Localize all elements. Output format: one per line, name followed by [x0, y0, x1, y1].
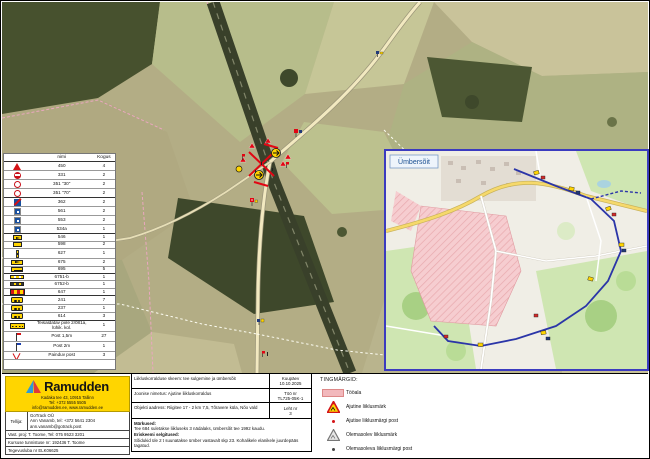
sign-qty: 4 — [93, 162, 115, 171]
sign-name: 362 — [31, 198, 93, 207]
legend-row: 351 "30"2 — [4, 180, 115, 189]
legend-row: 4504 — [4, 162, 115, 171]
plan-notes: Märkused: Tee 684 suletakse liikluseks 3… — [132, 419, 311, 451]
company-name: Ramudden — [44, 379, 109, 394]
sign-name: 6751-b — [31, 274, 93, 281]
company-block: Ramudden Kadaka tee 43, 10915 Tallinn Te… — [5, 376, 130, 455]
credits-table: Tellija: GoTrack OÜ Ann Vanamb, tel: +37… — [5, 412, 130, 454]
ta-plan-sheet: nimi Kogus 4504 3312 351 "30"2 351 "70"2… — [0, 0, 650, 459]
sign-qty: 1 — [93, 281, 115, 288]
plate-icon — [13, 242, 22, 247]
inset-label: Ümbersõit — [398, 158, 430, 166]
object-address: Objekti aadress: Riigitee 17 - 2 km 7,5,… — [132, 403, 269, 418]
flex-post-icon — [13, 353, 21, 359]
barrier-plank-icon — [10, 282, 24, 287]
info-sign-icon — [14, 226, 21, 233]
legend-row: 3622 — [4, 198, 115, 207]
sign-qty: 2 — [93, 207, 115, 216]
legend-row: 5982 — [4, 241, 115, 249]
sign-name: 546 — [31, 234, 93, 242]
striped-barrier-icon — [10, 289, 25, 295]
sign-qty: 2 — [93, 198, 115, 207]
barrier-plank-icon — [10, 275, 24, 280]
sign-name: Post 2m — [31, 342, 93, 352]
detour-inset-map: Ümbersõit — [384, 149, 649, 371]
legend-header-row: nimi Kogus — [4, 154, 115, 162]
sign-name: 675 — [31, 259, 93, 267]
notes-title: Märkused: — [134, 421, 156, 426]
symbol-label: Ajutise liiklusmärgi post — [346, 418, 398, 424]
sign-name: 695 — [31, 266, 93, 274]
sign-qty: 1 — [93, 234, 115, 242]
sign-qty: 2 — [93, 241, 115, 249]
sign-qty: 1 — [93, 342, 115, 352]
note-line2: Sõidukid üle 2 t suunatakse ümber vastav… — [134, 438, 309, 449]
sign-name: 331 — [31, 171, 93, 180]
portable-fence-icon — [10, 323, 25, 329]
sign-qty: 1 — [93, 249, 115, 259]
symbol-label: Olemasoleva liiklusmärgi post — [346, 446, 412, 452]
sign-qty: 1 — [93, 288, 115, 296]
legend-row: 6955 — [4, 266, 115, 274]
sign-name: 598 — [31, 241, 93, 249]
work-area-icon — [322, 389, 344, 397]
legend-row: Post 2m1 — [4, 342, 115, 352]
ramudden-logo-icon — [26, 380, 41, 393]
symbol-label: Ajutine liiklusmärk — [346, 404, 386, 410]
prepared-by-line: Vast. proj: T. Toome, Tel: 075 9523 3201 — [6, 430, 129, 438]
sheet-number-value: 3 — [271, 411, 310, 416]
sign-qty: 2 — [93, 189, 115, 198]
symbol-item: Tööala — [320, 386, 492, 400]
legend-row: 351 "70"2 — [4, 189, 115, 198]
legend-row: 6752-b1 — [4, 281, 115, 288]
legend-row: 6752 — [4, 259, 115, 267]
sign-qty: 3 — [93, 352, 115, 360]
sign-name: 241 — [31, 296, 93, 304]
work-area-zone — [411, 206, 521, 326]
legend-row: 6751-b1 — [4, 274, 115, 281]
legend-row: 5532 — [4, 216, 115, 225]
legend-row: 2371 — [4, 304, 115, 312]
sign-name: 237 — [31, 304, 93, 312]
info-sign-icon — [14, 217, 21, 224]
sign-name: Painduv post — [31, 352, 93, 360]
temporary-sign-post-icon — [332, 420, 335, 423]
plan-scheme-title: Liikluskorralduse skeem: tee sulgemine j… — [132, 374, 269, 388]
sign-legend-table: nimi Kogus 4504 3312 351 "30"2 351 "70"2… — [4, 154, 115, 360]
symbol-label: Tööala — [346, 390, 361, 396]
job-number-value: TL725-05K-1 — [271, 396, 310, 401]
sign-name: 647 — [31, 288, 93, 296]
sign-name: Teisaldatav piire 2/081a, lühik. kol. — [31, 320, 93, 332]
legend-row: 3312 — [4, 171, 115, 180]
legend-row: 534a1 — [4, 225, 115, 234]
license-line: Tegevusluba nr ELK06625 — [6, 446, 129, 454]
sign-legend-panel: nimi Kogus 4504 3312 351 "30"2 351 "70"2… — [3, 153, 116, 370]
speed-limit-sign-icon — [14, 190, 21, 197]
red-flag-post-icon — [14, 333, 21, 341]
sign-qty: 3 — [93, 312, 115, 320]
symbols-title: TINGMÄRGID: — [320, 377, 492, 383]
no-entry-sign-icon — [14, 172, 21, 179]
company-brand-box: Ramudden Kadaka tee 43, 10915 Tallinn Te… — [5, 376, 130, 412]
sign-name: 351 "30" — [31, 180, 93, 189]
legend-row: 6471 — [4, 288, 115, 296]
symbol-item: Ajutise liiklusmärgi post — [320, 414, 492, 428]
symbol-item: Ajutine liiklusmärk — [320, 400, 492, 414]
roadworks-sign-icon — [13, 163, 21, 170]
sign-name: 6752-b — [31, 281, 93, 288]
legend-header-qty: Kogus — [93, 154, 115, 162]
sign-name: 450 — [31, 162, 93, 171]
arrow-plate-icon — [13, 235, 22, 240]
detour-map-canvas: Ümbersõit — [386, 151, 647, 369]
sign-qty: 2 — [93, 171, 115, 180]
legend-row: Post 1,5m27 — [4, 332, 115, 342]
plan-info-box: Liikluskorralduse skeem: tee sulgemine j… — [131, 373, 312, 452]
arrow-board-icon — [11, 260, 23, 265]
existing-sign-triangle-icon — [327, 429, 340, 441]
client-email: ann.vanamb@gotrack.post — [30, 424, 127, 429]
legend-row: 2417 — [4, 296, 115, 304]
title-block-footer: Ramudden Kadaka tee 43, 10915 Tallinn Te… — [2, 373, 648, 457]
sign-name: 627 — [31, 249, 93, 259]
sign-qty: 2 — [93, 216, 115, 225]
warning-lamp-icon — [11, 305, 23, 311]
legend-header-icon — [4, 154, 31, 162]
date-value: 10.10.2025 — [271, 381, 310, 386]
sign-name: 534a — [31, 225, 93, 234]
restriction-sign-icon — [14, 199, 21, 206]
sign-qty: 2 — [93, 259, 115, 267]
sign-qty: 1 — [93, 225, 115, 234]
drawing-name: Joonise nimetus: Ajutine liikluskorraldu… — [132, 389, 269, 402]
client-label: Tellija: — [6, 412, 28, 429]
sign-name: 351 "70" — [31, 189, 93, 198]
warning-lamp-icon — [11, 297, 23, 303]
map-symbols-legend: TINGMÄRGID: Tööala Ajutine liiklusmärk A… — [320, 377, 492, 456]
sign-qty: 1 — [93, 320, 115, 332]
info-sign-icon — [14, 208, 21, 215]
delineator-post-icon — [16, 250, 18, 258]
company-address-line3: info@ramudden.ee, www.ramudden.ee — [8, 405, 127, 410]
sign-qty: 1 — [93, 274, 115, 281]
warning-lamp-icon — [11, 313, 23, 319]
pond — [597, 180, 611, 188]
sign-name: 553 — [31, 216, 93, 225]
sign-qty: 7 — [93, 296, 115, 304]
symbol-item: Olemasolev liiklusmärk — [320, 428, 492, 442]
text-plate-icon — [11, 267, 23, 272]
legend-row: Painduv post3 — [4, 352, 115, 360]
symbol-item: Olemasoleva liiklusmärgi post — [320, 442, 492, 456]
sign-qty: 27 — [93, 332, 115, 342]
sign-name: 614 — [31, 312, 93, 320]
legend-row: 6143 — [4, 312, 115, 320]
notes-subtitle: Eriskeemi selgitused: — [134, 432, 179, 437]
legend-row: 5461 — [4, 234, 115, 242]
legend-header-name: nimi — [31, 154, 93, 162]
sign-name: 561 — [31, 207, 93, 216]
blue-flag-post-icon — [14, 343, 21, 351]
legend-row: Teisaldatav piire 2/081a, lühik. kol.1 — [4, 320, 115, 332]
speed-limit-sign-icon — [14, 181, 21, 188]
temporary-sign-triangle-icon — [327, 401, 340, 413]
course-certificate-line: Kursuse tunnistuse nr: 192436 T. Toome — [6, 438, 129, 446]
sign-name: Post 1,5m — [31, 332, 93, 342]
existing-sign-post-icon — [332, 448, 335, 451]
legend-row: 6271 — [4, 249, 115, 259]
sign-qty: 5 — [93, 266, 115, 274]
inset-label-box: Ümbersõit — [390, 155, 438, 168]
sign-qty: 1 — [93, 304, 115, 312]
arrow-sign-marker — [236, 166, 242, 172]
symbol-label: Olemasolev liiklusmärk — [346, 432, 397, 438]
sign-qty: 2 — [93, 180, 115, 189]
legend-row: 5612 — [4, 207, 115, 216]
